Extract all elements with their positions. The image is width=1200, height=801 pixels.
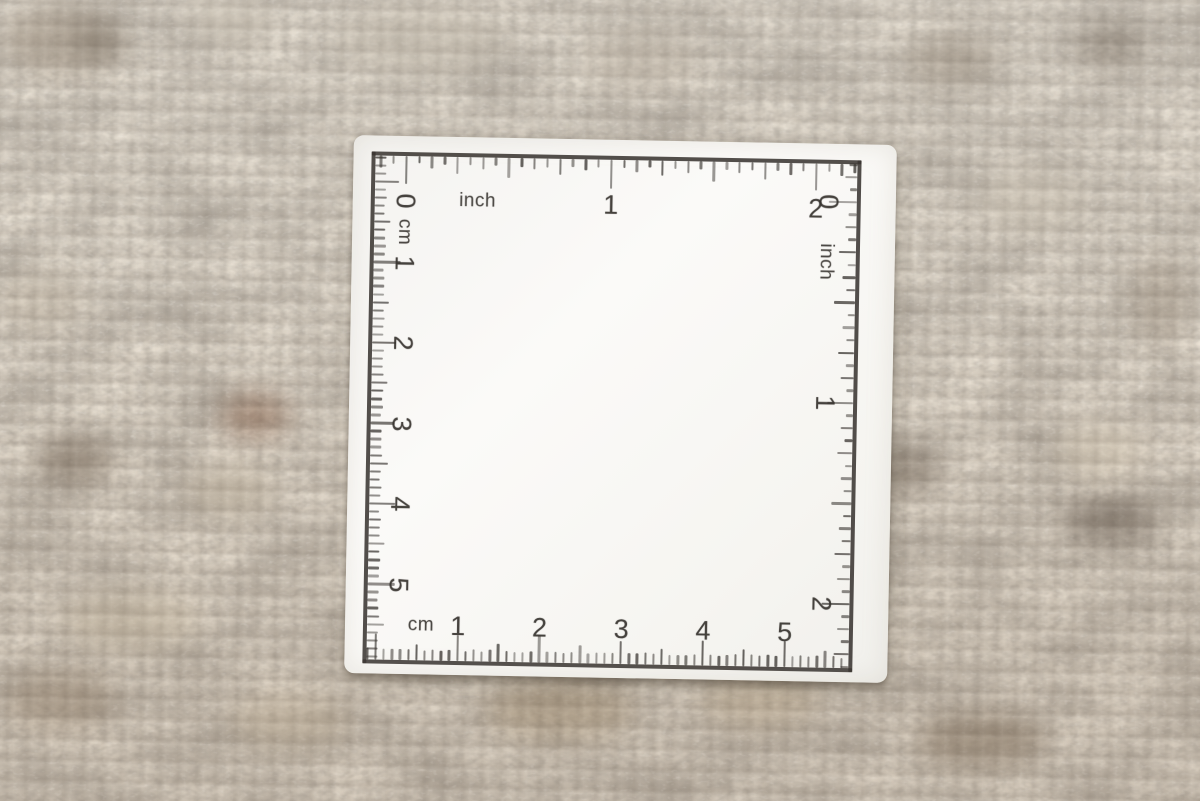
left-scale-tick (373, 269, 383, 272)
bottom-scale-tick (685, 655, 688, 665)
top-scale-tick (405, 156, 408, 184)
top-scale-tick (636, 160, 639, 172)
left-scale-number-3: 3 (386, 408, 417, 439)
right-scale-tick (837, 628, 849, 631)
right-scale-number-2: 2 (806, 588, 837, 619)
left-scale-tick (368, 575, 379, 578)
top-scale-tick (610, 160, 613, 189)
bottom-scale-number-5: 5 (768, 617, 801, 648)
right-scale-tick (842, 540, 851, 543)
bottom-scale-tick (382, 648, 385, 659)
right-scale-tick (847, 289, 856, 292)
left-scale-tick (371, 414, 381, 417)
left-scale-tick (373, 285, 384, 288)
bottom-scale-tick (807, 656, 810, 667)
left-scale-tick (373, 277, 384, 280)
bottom-scale-tick (579, 645, 582, 663)
left-scale-tick (371, 430, 382, 433)
bottom-scale-tick (726, 655, 729, 666)
bottom-scale-tick (391, 649, 394, 660)
bottom-scale-tick (480, 651, 483, 661)
left-scale-tick (368, 550, 379, 553)
left-scale-tick (375, 212, 386, 215)
right-scale-tick (840, 641, 849, 644)
right-scale-tick (835, 552, 851, 555)
left-scale-number-4: 4 (385, 489, 416, 520)
left-scale-tick (372, 333, 383, 336)
right-scale-tick (845, 176, 857, 179)
left-scale-tick (370, 462, 388, 465)
right-scale-tick (848, 264, 856, 267)
top-scale-tick (802, 163, 805, 171)
top-scale-tick (712, 162, 715, 182)
bottom-scale-tick (750, 655, 753, 667)
top-scale-tick (495, 158, 498, 166)
bottom-scale-number-4: 4 (687, 615, 720, 646)
bottom-scale-tick (546, 652, 549, 663)
top-scale-tick (738, 162, 741, 173)
top-scale-tick (726, 162, 729, 170)
right-scale-tick (841, 427, 853, 430)
right-scale-tick (843, 276, 856, 279)
top-scale-unit-label: inch (447, 190, 507, 213)
right-scale-tick (850, 188, 857, 191)
left-scale-tick (376, 156, 387, 159)
left-scale-tick (374, 221, 390, 224)
right-scale-tick (844, 490, 852, 493)
left-scale-tick (367, 607, 378, 610)
top-scale-tick (508, 158, 511, 178)
right-scale-tick (846, 339, 854, 342)
top-scale-tick (661, 161, 664, 176)
left-scale-tick (373, 293, 384, 296)
left-scale-tick (374, 253, 385, 256)
right-scale-tick (843, 515, 851, 518)
bottom-scale-tick (562, 653, 565, 663)
bottom-scale-tick (505, 651, 508, 662)
top-scale-tick (482, 157, 485, 170)
left-scale-tick (366, 655, 377, 658)
bottom-scale-tick (521, 652, 524, 662)
bottom-scale-tick (603, 653, 606, 664)
right-scale-tick (846, 389, 853, 392)
left-scale-number-2: 2 (388, 328, 419, 359)
right-scale-tick (845, 414, 852, 417)
left-scale-tick (374, 237, 385, 240)
bottom-scale-tick (709, 655, 712, 666)
top-scale-tick (789, 163, 792, 175)
left-scale-tick (367, 647, 378, 650)
bottom-scale-tick (497, 644, 500, 662)
bottom-scale-tick (440, 650, 443, 660)
bottom-scale-tick (554, 652, 557, 663)
right-scale-tick (842, 565, 850, 568)
bottom-scale-tick (799, 655, 802, 667)
top-scale-tick (456, 157, 459, 174)
bottom-scale-tick (644, 653, 647, 665)
left-scale-tick (373, 301, 389, 304)
right-scale-tick (842, 326, 854, 329)
left-scale-number-5: 5 (383, 569, 414, 600)
right-scale-number-0: 0 (814, 187, 845, 218)
top-scale-number-1: 1 (594, 189, 627, 220)
bottom-scale-unit-label: cm (391, 614, 451, 637)
right-scale-tick (846, 364, 854, 367)
top-scale-tick (392, 156, 395, 164)
right-scale-tick (848, 239, 856, 242)
bottom-scale-tick (407, 649, 410, 661)
left-scale-unit-label: cm (393, 202, 416, 262)
left-scale-tick (371, 406, 383, 409)
bottom-scale-tick (611, 653, 614, 664)
left-scale-tick (370, 454, 382, 457)
right-scale-tick (844, 440, 852, 443)
left-scale-tick (369, 526, 380, 529)
left-scale-tick (375, 164, 386, 167)
bottom-scale-tick (472, 649, 475, 661)
left-scale-tick (369, 510, 379, 513)
bottom-scale-tick (693, 654, 696, 665)
bottom-scale-number-2: 2 (523, 612, 556, 643)
bottom-scale-tick (816, 656, 819, 668)
left-scale-tick (375, 172, 386, 175)
right-scale-tick (841, 666, 849, 669)
right-scale-tick (849, 163, 857, 166)
top-scale-tick (597, 160, 600, 168)
top-scale-tick (777, 163, 780, 171)
left-scale-tick (375, 196, 387, 199)
bottom-scale-tick (775, 656, 778, 667)
top-scale-tick (546, 159, 549, 168)
right-scale-tick (838, 352, 854, 355)
left-scale-tick (372, 373, 384, 376)
left-scale-tick (367, 623, 384, 626)
top-scale-tick (700, 161, 703, 169)
top-scale-tick (572, 159, 575, 167)
top-scale-tick (444, 157, 447, 165)
left-scale-tick (372, 325, 383, 328)
photo-of-ruler-card-on-carpet: 012inch12345cm12345cm012inch (0, 0, 1200, 801)
right-scale-number-1: 1 (810, 387, 841, 418)
right-scale-tick (832, 502, 852, 505)
bottom-scale-tick (742, 649, 745, 666)
bottom-scale-tick (448, 650, 451, 661)
bottom-scale-tick (734, 654, 737, 666)
bottom-scale-tick (717, 655, 720, 665)
right-scale-tick (838, 251, 856, 254)
left-scale-tick (370, 478, 380, 481)
top-scale-tick (764, 163, 767, 181)
left-scale-tick (367, 615, 379, 618)
left-scale-tick (372, 349, 384, 352)
right-scale-tick (840, 477, 851, 480)
right-scale-tick (844, 465, 852, 468)
left-scale-tick (369, 494, 380, 497)
bottom-scale-number-3: 3 (605, 614, 638, 645)
bottom-scale-tick (415, 644, 418, 660)
left-scale-tick (373, 317, 385, 320)
left-scale-tick (369, 518, 381, 521)
bottom-scale-tick (513, 652, 516, 662)
bottom-scale-tick (791, 656, 794, 667)
right-scale-tick (848, 214, 856, 217)
bottom-scale-tick (668, 655, 671, 665)
right-scale-tick (841, 590, 849, 593)
bottom-scale-tick (529, 651, 532, 662)
bottom-scale-tick (587, 653, 590, 663)
ruler-frame: 012inch12345cm12345cm012inch (362, 151, 861, 672)
left-scale-tick (375, 204, 385, 207)
left-scale-tick (368, 567, 379, 570)
bottom-scale-tick (677, 655, 680, 666)
bottom-scale-tick (636, 654, 639, 665)
left-scale-tick (367, 639, 378, 642)
top-scale-tick (585, 159, 588, 170)
left-scale-tick (370, 486, 382, 489)
left-scale-tick (368, 559, 380, 562)
top-scale-tick (649, 160, 652, 168)
left-scale-tick (371, 390, 383, 393)
right-scale-tick (839, 527, 851, 530)
bottom-scale-tick (628, 653, 631, 664)
bottom-scale-tick (758, 655, 761, 666)
left-scale-tick (370, 446, 381, 449)
left-scale-tick (368, 542, 384, 545)
top-scale-tick (533, 158, 536, 169)
right-scale-tick (833, 653, 848, 656)
right-scale-tick (842, 615, 850, 618)
left-scale-tick (371, 398, 382, 401)
left-scale-tick (372, 357, 383, 360)
left-scale-tick (374, 245, 386, 248)
left-scale-tick (368, 591, 379, 594)
right-scale-tick (841, 377, 854, 380)
top-scale-tick (418, 156, 421, 164)
bottom-scale-tick (824, 651, 827, 668)
left-scale-tick (370, 438, 381, 441)
bottom-scale-tick (423, 650, 426, 660)
right-scale-unit-label: inch (814, 232, 837, 292)
right-scale-tick (847, 314, 854, 317)
top-scale-tick (828, 164, 831, 172)
top-scale-tick (687, 161, 690, 173)
bottom-scale-tick (660, 649, 663, 665)
top-scale-tick (841, 164, 844, 176)
top-scale-tick (559, 159, 562, 175)
bottom-scale-tick (431, 649, 434, 660)
left-scale-tick (367, 599, 377, 602)
bottom-scale-tick (489, 650, 492, 662)
right-scale-tick (833, 301, 855, 304)
left-scale-tick (370, 470, 381, 473)
top-scale-tick (623, 160, 626, 168)
bottom-scale-tick (570, 653, 573, 664)
left-scale-tick (374, 229, 385, 232)
right-scale-tick (845, 226, 856, 229)
right-scale-tick (837, 452, 852, 455)
bottom-scale-tick (595, 652, 598, 663)
left-scale-tick (367, 631, 378, 634)
right-scale-tick (837, 578, 850, 581)
top-scale-tick (674, 161, 677, 169)
bottom-scale-tick (832, 656, 835, 668)
left-scale-tick (369, 534, 380, 537)
bottom-scale-tick (652, 654, 655, 665)
top-scale-tick (469, 157, 472, 165)
top-scale-tick (431, 156, 434, 168)
bottom-scale-tick (766, 655, 769, 667)
ruler-card: 012inch12345cm12345cm012inch (344, 135, 897, 683)
left-scale-tick (375, 180, 399, 183)
left-scale-tick (372, 365, 383, 368)
ruler-frame-line-bottom (362, 659, 852, 672)
top-scale-tick (521, 158, 524, 167)
left-scale-tick (371, 381, 387, 384)
bottom-scale-tick (399, 649, 402, 660)
left-scale-tick (373, 309, 384, 312)
left-scale-tick (375, 188, 386, 191)
bottom-scale-tick (464, 651, 467, 661)
top-scale-tick (751, 162, 754, 170)
bottom-scale-tick (619, 641, 622, 664)
